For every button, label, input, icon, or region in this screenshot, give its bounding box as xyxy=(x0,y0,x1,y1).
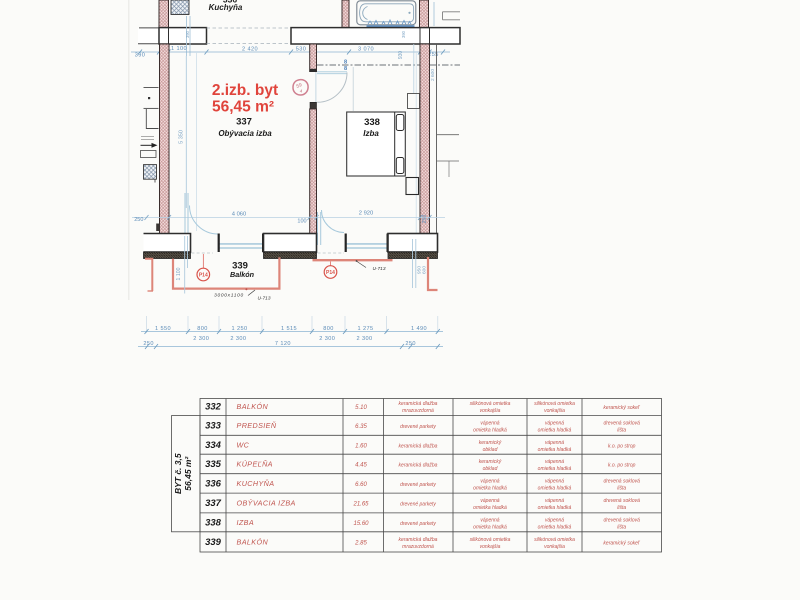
svg-text:56,45 m²: 56,45 m² xyxy=(183,456,193,491)
svg-text:vápenná: vápenná xyxy=(545,459,564,465)
svg-text:2.izb. byt: 2.izb. byt xyxy=(212,82,278,99)
svg-text:omietka hladká: omietka hladká xyxy=(538,485,572,491)
svg-text:8: 8 xyxy=(344,66,347,72)
svg-text:2 300: 2 300 xyxy=(193,336,209,342)
svg-text:250: 250 xyxy=(422,215,428,224)
svg-text:drevené parkety: drevené parkety xyxy=(400,502,436,508)
svg-text:drevená soklová: drevená soklová xyxy=(603,517,640,523)
svg-text:5 350: 5 350 xyxy=(179,130,185,144)
svg-text:drevené parkety: drevené parkety xyxy=(400,482,436,488)
svg-text:KÚPEĽŇA: KÚPEĽŇA xyxy=(237,460,273,469)
svg-text:silikónová omietka: silikónová omietka xyxy=(470,401,511,407)
svg-text:vápenná: vápenná xyxy=(480,421,499,427)
svg-text:1 275: 1 275 xyxy=(358,326,374,332)
svg-text:keramická dlažba: keramická dlažba xyxy=(399,401,438,407)
svg-text:lišta: lišta xyxy=(617,485,626,491)
svg-text:omietka hladká: omietka hladká xyxy=(538,505,572,511)
svg-text:5.10: 5.10 xyxy=(355,405,367,411)
svg-text:silikónová omietka: silikónová omietka xyxy=(470,537,511,543)
svg-text:4 060: 4 060 xyxy=(232,212,247,218)
svg-text:vonkajšia: vonkajšia xyxy=(480,408,501,414)
svg-text:keramický: keramický xyxy=(479,440,502,446)
svg-text:3000x1100: 3000x1100 xyxy=(214,293,244,299)
svg-text:250: 250 xyxy=(143,341,154,347)
svg-text:2 420: 2 420 xyxy=(242,47,258,53)
svg-text:950: 950 xyxy=(416,266,422,274)
svg-text:omietka hladká: omietka hladká xyxy=(538,428,572,434)
svg-text:56,45 m²: 56,45 m² xyxy=(212,99,274,116)
svg-text:100: 100 xyxy=(297,219,306,225)
svg-text:390: 390 xyxy=(185,30,190,38)
svg-text:1 100: 1 100 xyxy=(176,267,182,280)
svg-text:omietka hladká: omietka hladká xyxy=(538,466,572,472)
svg-text:omietka hladká: omietka hladká xyxy=(473,485,507,491)
svg-text:339: 339 xyxy=(205,537,222,548)
svg-text:drevené parkety: drevené parkety xyxy=(400,424,436,430)
svg-text:BYT č. 3,5: BYT č. 3,5 xyxy=(173,453,183,494)
svg-text:2 920: 2 920 xyxy=(359,211,374,217)
svg-text:U-713: U-713 xyxy=(372,266,385,272)
svg-text:Obývacia izba: Obývacia izba xyxy=(218,129,272,138)
svg-text:drevené parkety: drevené parkety xyxy=(400,521,436,527)
svg-text:omietka hladká: omietka hladká xyxy=(473,524,507,530)
svg-text:vonkajšia: vonkajšia xyxy=(480,544,501,550)
svg-text:336: 336 xyxy=(205,478,222,489)
svg-text:21.65: 21.65 xyxy=(352,502,369,508)
svg-text:silikónová omietka: silikónová omietka xyxy=(534,401,575,407)
svg-text:obklad: obklad xyxy=(483,466,498,472)
svg-text:mrazuvzdorná: mrazuvzdorná xyxy=(402,544,434,550)
svg-text:silikónová omietka: silikónová omietka xyxy=(534,537,575,543)
svg-text:k.o. po strop: k.o. po strop xyxy=(608,443,636,449)
svg-text:omietka hladká: omietka hladká xyxy=(538,524,572,530)
svg-text:OBÝVACIA IZBA: OBÝVACIA IZBA xyxy=(237,499,296,508)
svg-text:mrazuvzdorná: mrazuvzdorná xyxy=(402,408,434,414)
svg-text:WC: WC xyxy=(237,440,250,449)
svg-text:390: 390 xyxy=(401,30,406,38)
svg-text:338: 338 xyxy=(364,117,380,128)
svg-text:vápenná: vápenná xyxy=(545,517,564,523)
svg-text:omietka hladká: omietka hladká xyxy=(473,428,507,434)
svg-text:lišta: lišta xyxy=(617,505,626,511)
svg-text:930: 930 xyxy=(398,51,404,60)
svg-text:337: 337 xyxy=(236,117,252,128)
svg-text:KUCHYŇA: KUCHYŇA xyxy=(237,479,275,488)
svg-text:IZBA: IZBA xyxy=(237,518,255,527)
svg-text:390: 390 xyxy=(135,53,146,59)
svg-text:keramická dlažba: keramická dlažba xyxy=(399,443,438,449)
svg-text:Kuchyňa: Kuchyňa xyxy=(209,3,243,12)
svg-text:335: 335 xyxy=(205,459,222,470)
svg-text:1 515: 1 515 xyxy=(281,326,297,332)
svg-text:1 490: 1 490 xyxy=(411,326,427,332)
svg-text:6.35: 6.35 xyxy=(355,424,367,430)
svg-text:omietka hladká: omietka hladká xyxy=(538,447,572,453)
svg-text:2 300: 2 300 xyxy=(357,336,373,342)
svg-text:vápenná: vápenná xyxy=(545,478,564,484)
svg-text:lišta: lišta xyxy=(617,428,626,434)
svg-text:drevená soklová: drevená soklová xyxy=(603,421,640,427)
svg-text:250: 250 xyxy=(405,341,416,347)
svg-text:P14: P14 xyxy=(326,270,335,276)
svg-text:8: 8 xyxy=(344,60,347,66)
svg-text:BALKÓN: BALKÓN xyxy=(237,538,269,547)
svg-text:k.o. po strop: k.o. po strop xyxy=(608,463,636,469)
svg-text:vonkajšia: vonkajšia xyxy=(544,544,565,550)
svg-text:drevená soklová: drevená soklová xyxy=(603,478,640,484)
svg-text:15.60: 15.60 xyxy=(353,521,369,527)
svg-text:2 300: 2 300 xyxy=(319,336,335,342)
svg-text:2 600: 2 600 xyxy=(430,69,436,81)
svg-text:332: 332 xyxy=(205,402,222,413)
svg-text:Balkón: Balkón xyxy=(230,270,255,279)
svg-text:keramický sokel': keramický sokel' xyxy=(603,405,641,411)
svg-text:lišta: lišta xyxy=(617,524,626,530)
svg-text:2.85: 2.85 xyxy=(354,541,367,547)
svg-text:Izba: Izba xyxy=(363,129,379,138)
svg-text:keramická dlažba: keramická dlažba xyxy=(399,463,438,469)
svg-text:333: 333 xyxy=(205,421,222,432)
svg-text:1 250: 1 250 xyxy=(232,326,248,332)
svg-text:drevená soklová: drevená soklová xyxy=(603,498,640,504)
svg-text:vápenná: vápenná xyxy=(480,478,499,484)
svg-text:vonkajšia: vonkajšia xyxy=(544,408,565,414)
svg-text:2 300: 2 300 xyxy=(230,336,246,342)
svg-text:7 120: 7 120 xyxy=(275,341,291,347)
svg-text:6.60: 6.60 xyxy=(355,482,367,488)
svg-text:800: 800 xyxy=(197,326,208,332)
svg-text:530: 530 xyxy=(296,47,307,53)
svg-text:600: 600 xyxy=(422,266,428,274)
svg-text:U-713: U-713 xyxy=(257,296,270,302)
svg-text:obklad: obklad xyxy=(483,447,498,453)
svg-text:1 550: 1 550 xyxy=(155,326,171,332)
svg-text:1.60: 1.60 xyxy=(355,443,367,449)
svg-text:P14: P14 xyxy=(199,273,208,279)
svg-text:vápenná: vápenná xyxy=(545,498,564,504)
svg-text:keramický sokel': keramický sokel' xyxy=(603,541,641,547)
svg-text:keramická dlažba: keramická dlažba xyxy=(399,537,438,543)
svg-text:PREDSIEŇ: PREDSIEŇ xyxy=(237,421,277,430)
svg-text:vápenná: vápenná xyxy=(480,498,499,504)
svg-text:337: 337 xyxy=(205,498,222,509)
svg-text:250: 250 xyxy=(134,217,143,223)
svg-text:4.45: 4.45 xyxy=(355,463,367,469)
svg-text:3 070: 3 070 xyxy=(358,47,374,53)
svg-text:BALKÓN: BALKÓN xyxy=(237,402,269,411)
svg-text:338: 338 xyxy=(205,517,222,528)
svg-text:vápenná: vápenná xyxy=(480,517,499,523)
svg-text:keramický: keramický xyxy=(479,459,502,465)
svg-text:vápenná: vápenná xyxy=(545,440,564,446)
svg-text:800: 800 xyxy=(323,326,334,332)
svg-text:vápenná: vápenná xyxy=(545,421,564,427)
svg-text:omietka hladká: omietka hladká xyxy=(473,505,507,511)
svg-text:334: 334 xyxy=(205,440,222,451)
svg-text:1 100: 1 100 xyxy=(171,46,187,52)
